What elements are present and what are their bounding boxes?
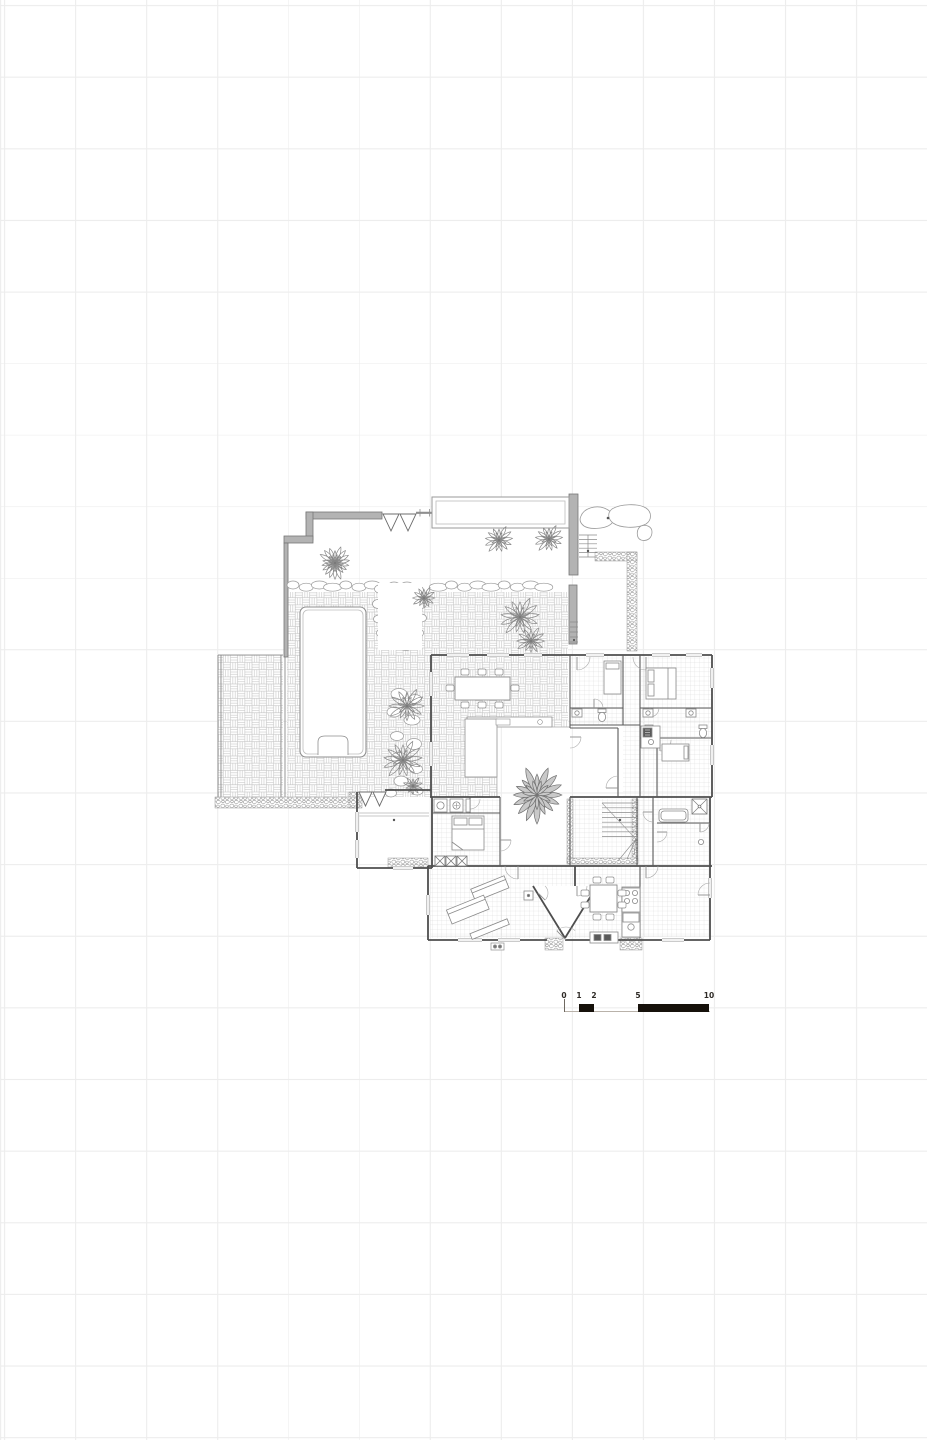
thick-entry-wall-upper xyxy=(569,494,578,575)
kitchen-island-icon xyxy=(590,932,618,943)
plant-icon xyxy=(319,546,349,579)
outdoor-counter xyxy=(465,717,552,777)
closet-icon xyxy=(435,856,467,866)
thick-entry-wall-lower xyxy=(569,585,577,644)
bathtub-icon xyxy=(659,809,688,822)
cabinet xyxy=(466,799,470,812)
sink-icon xyxy=(686,709,696,717)
lap-pool xyxy=(432,497,569,528)
pebble-path-vertical xyxy=(627,552,637,651)
drawing-sheet: 0 1 2 5 10 xyxy=(0,0,927,1440)
plant-icon xyxy=(535,525,563,551)
sink-icon xyxy=(643,709,653,717)
kitchenette-icon xyxy=(641,726,660,748)
pool-step xyxy=(318,736,348,755)
floor-plan-canvas xyxy=(0,0,927,1440)
bed-icon xyxy=(646,668,676,699)
entry-gate-icon xyxy=(383,514,416,531)
bed-icon xyxy=(452,816,484,850)
plant-icon xyxy=(513,767,562,824)
shower-icon xyxy=(692,799,707,814)
bed-icon xyxy=(604,661,621,694)
planting-pocket xyxy=(378,583,422,650)
toilet-icon xyxy=(699,725,707,738)
bed-icon xyxy=(662,744,689,761)
toilet-icon xyxy=(598,709,606,722)
outdoor-bench xyxy=(491,943,504,950)
dryer-icon xyxy=(450,799,463,812)
sink-icon xyxy=(572,709,582,717)
washer-icon xyxy=(434,799,447,812)
fixture-dot xyxy=(698,839,703,844)
swimming-pool xyxy=(300,607,366,757)
plant-icon xyxy=(485,526,513,552)
side-table-icon xyxy=(524,891,533,900)
west-terrace-paving xyxy=(218,655,283,797)
